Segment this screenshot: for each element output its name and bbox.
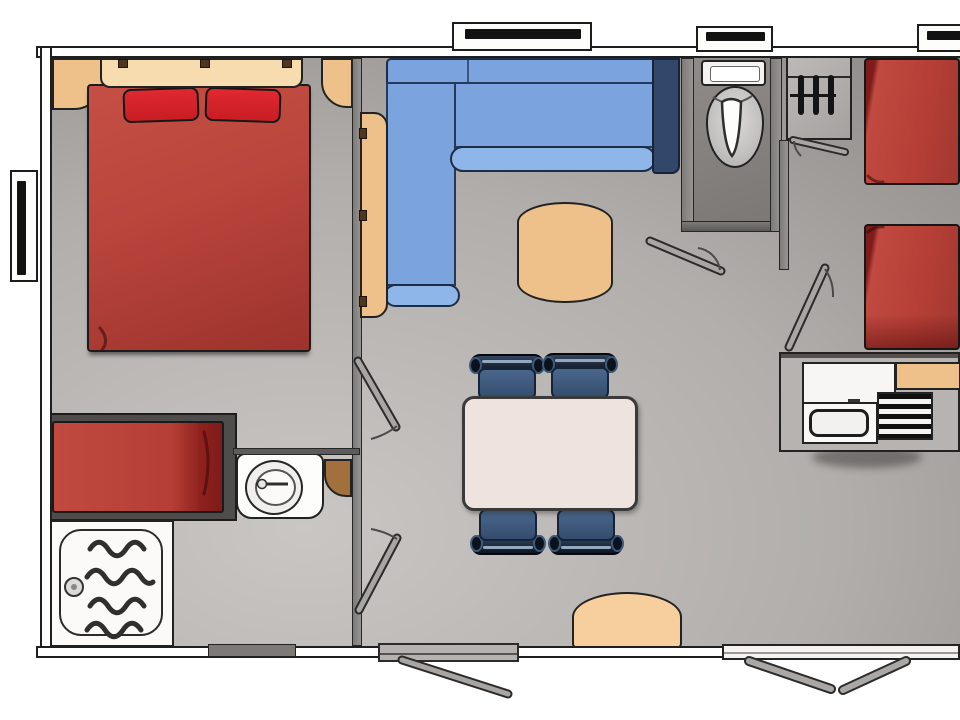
pillow	[122, 87, 199, 124]
sofa-seat-return	[386, 82, 456, 286]
sofa-front-edge	[450, 146, 656, 172]
window-glazing-bar	[927, 31, 960, 40]
window-right	[917, 24, 960, 52]
hinge-icon	[359, 128, 367, 139]
sofa-seat	[454, 82, 654, 148]
single-bed	[52, 421, 224, 513]
partition-wc-left	[681, 58, 694, 232]
kitchen-counter	[779, 352, 960, 452]
toilet-cistern	[701, 60, 766, 86]
drainer	[877, 392, 933, 440]
entrance-door-leaf	[402, 660, 508, 694]
hinge-icon	[359, 296, 367, 307]
washbasin-unit	[236, 453, 324, 519]
window-over-sofa	[452, 22, 592, 51]
partition-basin	[233, 448, 360, 455]
entrance-door-panel	[378, 643, 519, 662]
sliding-bay-panel	[722, 644, 960, 660]
sofa-front-edge-return	[384, 284, 460, 307]
floor-plan	[0, 0, 960, 720]
dining-table	[462, 396, 638, 511]
window-glazing-bar	[706, 32, 765, 41]
dining-chair	[470, 354, 544, 400]
single-bed-frame	[47, 413, 237, 521]
window-left	[10, 170, 38, 282]
worktop	[895, 362, 960, 390]
window-over-wc	[696, 26, 773, 52]
coffee-table	[517, 202, 613, 303]
dining-chair	[549, 509, 623, 555]
hanger-icon	[813, 75, 819, 115]
wardrobe	[786, 56, 852, 140]
pillow	[204, 87, 281, 124]
folding-side-panel	[360, 112, 388, 318]
double-bed	[87, 84, 311, 352]
twin-bed-1	[864, 58, 960, 185]
headboard-shelf	[100, 58, 303, 88]
hinge-icon	[200, 59, 210, 68]
shower-cabinet	[50, 520, 174, 647]
bench	[572, 592, 682, 649]
sofa-armrest	[652, 58, 680, 174]
washbasin-bowl	[255, 469, 296, 506]
exterior-step	[208, 644, 296, 657]
washbasin	[245, 460, 303, 515]
hanger-icon	[798, 75, 804, 115]
twin-bed-2	[864, 224, 960, 350]
sliding-bay-leaves	[749, 661, 906, 690]
dining-chair	[471, 509, 545, 555]
sofa-backrest	[386, 58, 658, 84]
dining-chair	[543, 353, 617, 399]
hinge-icon	[118, 59, 128, 68]
partition-wc-bottom	[681, 221, 782, 232]
hinge-icon	[282, 59, 292, 68]
partition-twin-bedroom	[779, 140, 789, 270]
hinge-icon	[359, 210, 367, 221]
hanger-icon	[828, 75, 834, 115]
window-glazing-bar	[17, 181, 26, 275]
sink	[809, 409, 869, 437]
sink-zone	[802, 402, 878, 444]
shower-drain	[64, 577, 84, 597]
wall-left	[40, 46, 52, 658]
window-glazing-bar	[465, 29, 581, 39]
